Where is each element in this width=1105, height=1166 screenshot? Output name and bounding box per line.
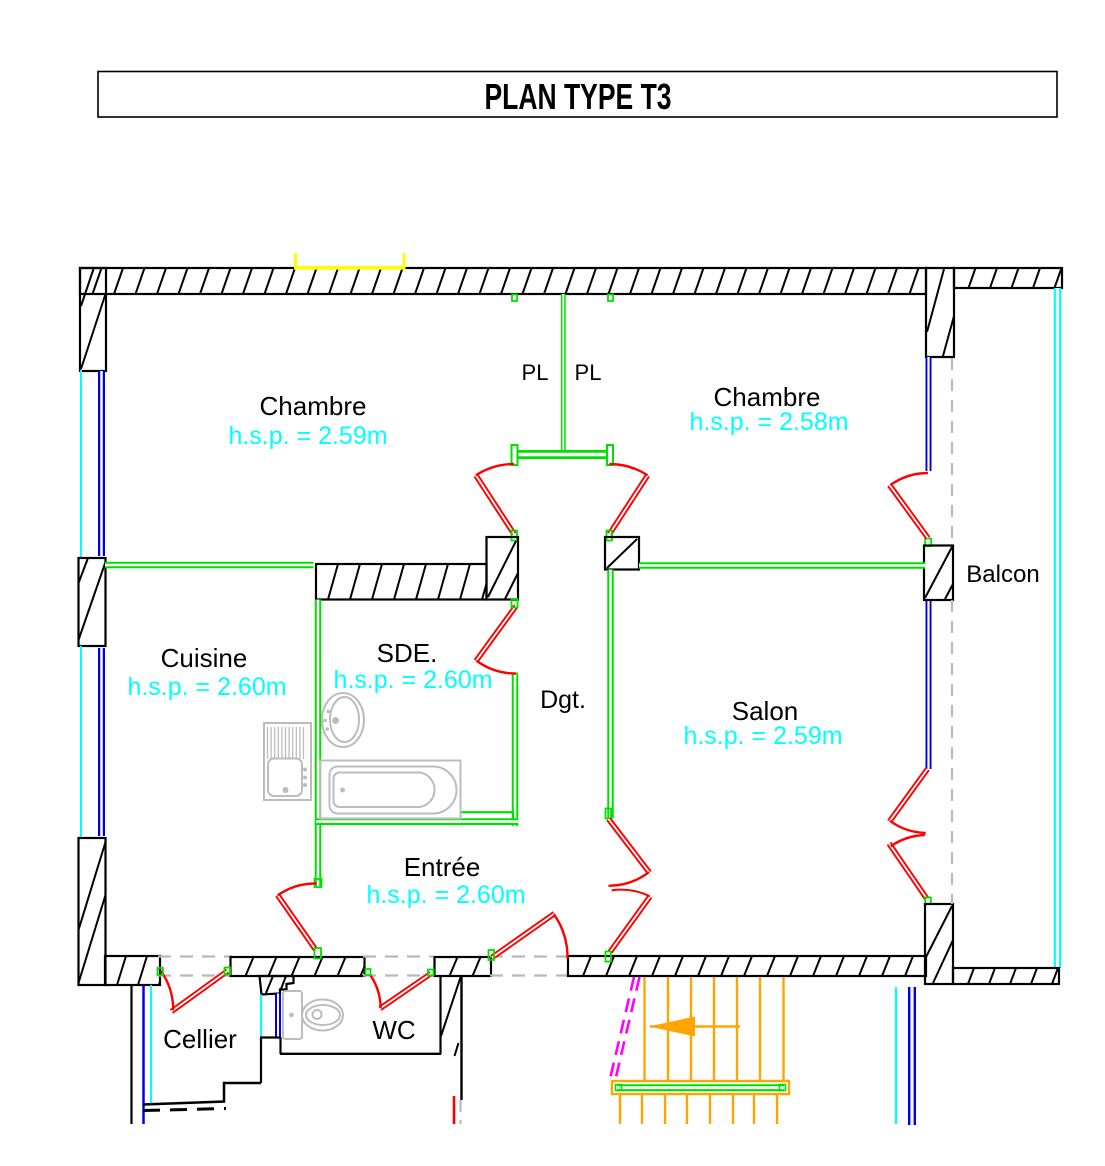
svg-text:PLAN TYPE T3: PLAN TYPE T3 <box>485 76 672 117</box>
svg-text:PL: PL <box>575 360 602 385</box>
svg-text:Cuisine: Cuisine <box>161 643 248 673</box>
svg-text:h.s.p. = 2.60m: h.s.p. = 2.60m <box>127 673 286 701</box>
svg-text:Dgt.: Dgt. <box>540 686 586 714</box>
svg-text:h.s.p. = 2.60m: h.s.p. = 2.60m <box>366 881 525 909</box>
svg-text:h.s.p. = 2.58m: h.s.p. = 2.58m <box>689 408 848 436</box>
svg-text:h.s.p. = 2.60m: h.s.p. = 2.60m <box>333 666 492 694</box>
svg-text:Cellier: Cellier <box>163 1024 237 1054</box>
svg-text:Chambre: Chambre <box>260 391 367 421</box>
svg-text:WC: WC <box>372 1015 415 1045</box>
svg-text:Entrée: Entrée <box>404 852 481 882</box>
svg-text:PL: PL <box>522 360 549 385</box>
svg-text:SDE.: SDE. <box>377 638 438 668</box>
svg-text:Balcon: Balcon <box>966 561 1039 588</box>
svg-text:h.s.p. = 2.59m: h.s.p. = 2.59m <box>683 722 842 750</box>
svg-text:h.s.p. = 2.59m: h.s.p. = 2.59m <box>228 422 387 450</box>
